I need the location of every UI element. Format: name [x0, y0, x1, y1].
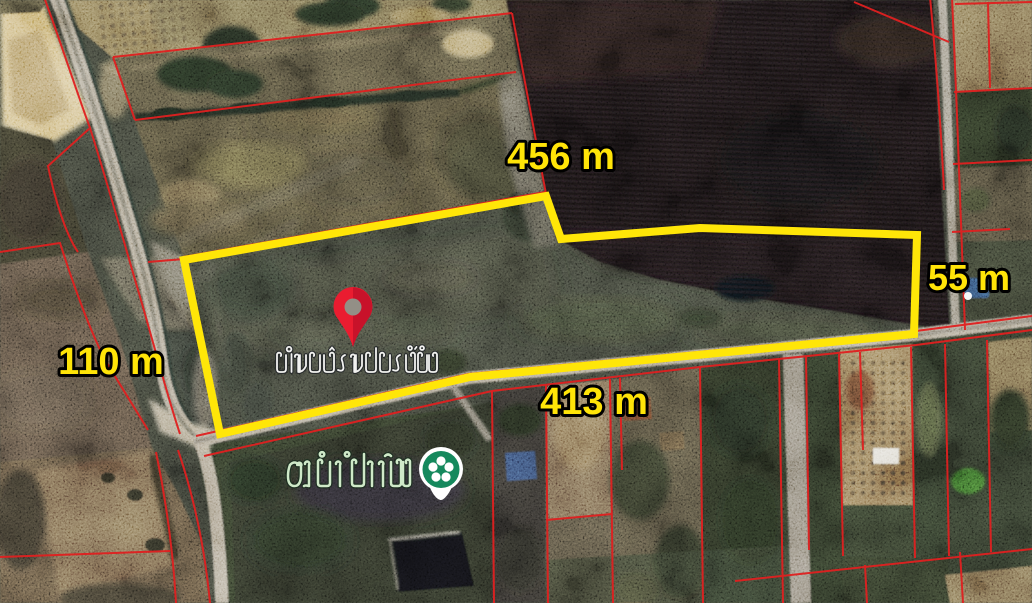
svg-text:110 m: 110 m	[58, 341, 164, 383]
svg-text:413 m: 413 m	[540, 381, 648, 423]
svg-text:456 m: 456 m	[507, 136, 615, 178]
svg-text:55 m: 55 m	[928, 257, 1010, 298]
